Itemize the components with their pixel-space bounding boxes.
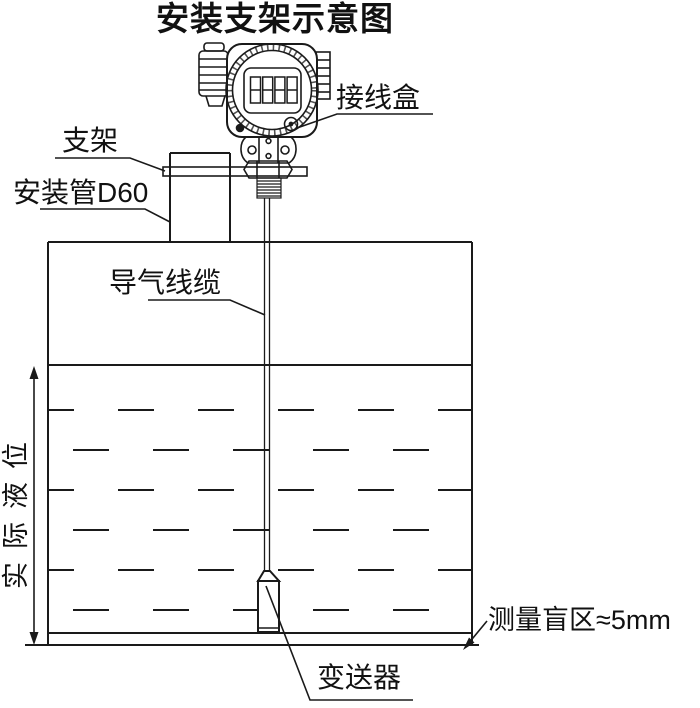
label-blind-zone: 测量盲区≈5mm [488,606,671,634]
label-air-cable: 导气线缆 [109,268,221,297]
label-transmitter: 变送器 [317,663,401,692]
label-junction-box: 接线盒 [336,83,420,112]
probe-transmitter [258,571,279,632]
air-guide-cable [265,198,270,571]
threaded-stem [257,178,281,198]
lcd-display [244,68,301,113]
label-actual-level: 实际液位 [2,429,30,589]
diagram-title: 安装支架示意图 [156,2,394,37]
label-mounting-pipe: 安装管D60 [13,178,148,207]
label-bracket: 支架 [62,126,118,155]
transmitter-head [199,43,330,198]
screw-left [237,125,244,132]
neck-adapter [241,137,296,163]
cable-gland [199,43,228,106]
bracket-plate [163,167,307,176]
tank-outline [25,242,479,646]
